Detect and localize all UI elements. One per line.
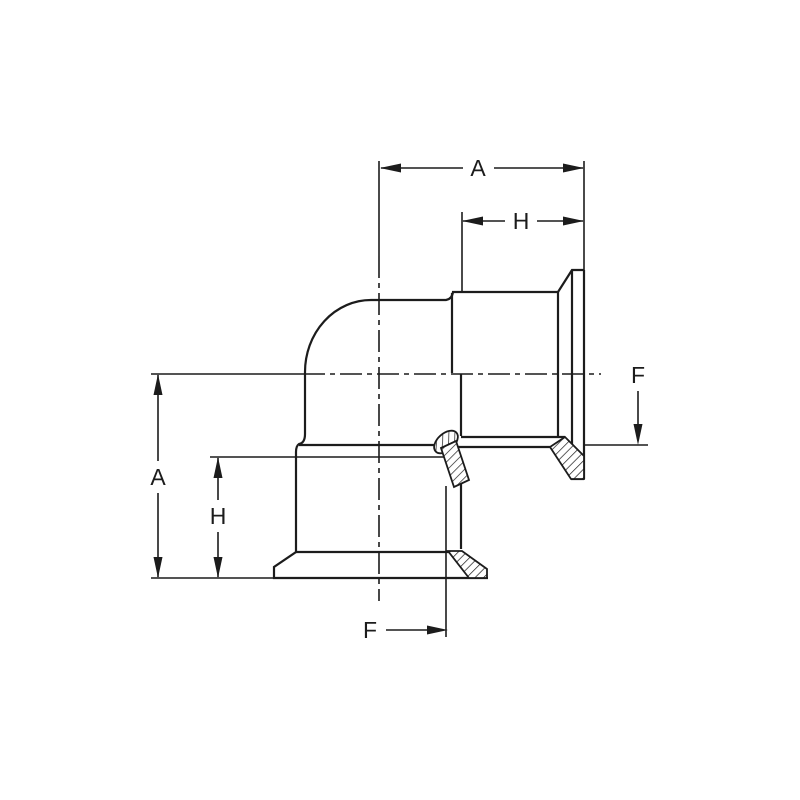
dim-a-left-arrow-down <box>154 557 163 578</box>
dimension-h-left: H <box>210 457 227 578</box>
dim-f-bottom-label: F <box>363 617 377 643</box>
dimension-f-right: F <box>631 362 645 445</box>
section-hatching <box>430 426 584 578</box>
dim-h-left-label: H <box>210 503 227 529</box>
dim-h-left-arrow-up <box>214 457 223 478</box>
bottom-flange-groove-section <box>448 551 487 578</box>
dim-a-top-arrow-left <box>380 164 401 173</box>
dim-f-right-arrow-down <box>634 424 643 445</box>
dimension-f-bottom: F <box>363 617 448 643</box>
dimension-a-top: A <box>380 155 584 181</box>
elbow-fitting-outline <box>274 270 584 578</box>
dim-a-top-arrow-right <box>563 164 584 173</box>
dim-a-left-arrow-up <box>154 374 163 395</box>
dim-a-top-label: A <box>470 155 486 181</box>
elbow-fitting-drawing: A H A H F <box>0 0 800 800</box>
extension-lines <box>151 161 648 637</box>
technical-drawing-canvas: A H A H F <box>0 0 800 800</box>
dim-f-right-label: F <box>631 362 645 388</box>
dim-f-bottom-arrow-right <box>427 626 448 635</box>
dim-a-left-label: A <box>150 464 166 490</box>
dimension-a-left: A <box>150 374 166 578</box>
elbow-outer-bend-arc <box>305 300 371 372</box>
dim-h-top-arrow-left <box>462 217 483 226</box>
right-outlet-top-edge <box>371 270 584 300</box>
dim-h-top-arrow-right <box>563 217 584 226</box>
dimension-h-top: H <box>462 208 584 234</box>
dim-h-left-arrow-down <box>214 557 223 578</box>
dimensions: A H A H F <box>150 155 645 643</box>
dim-h-top-label: H <box>513 208 530 234</box>
right-flange-groove-section <box>550 437 584 479</box>
